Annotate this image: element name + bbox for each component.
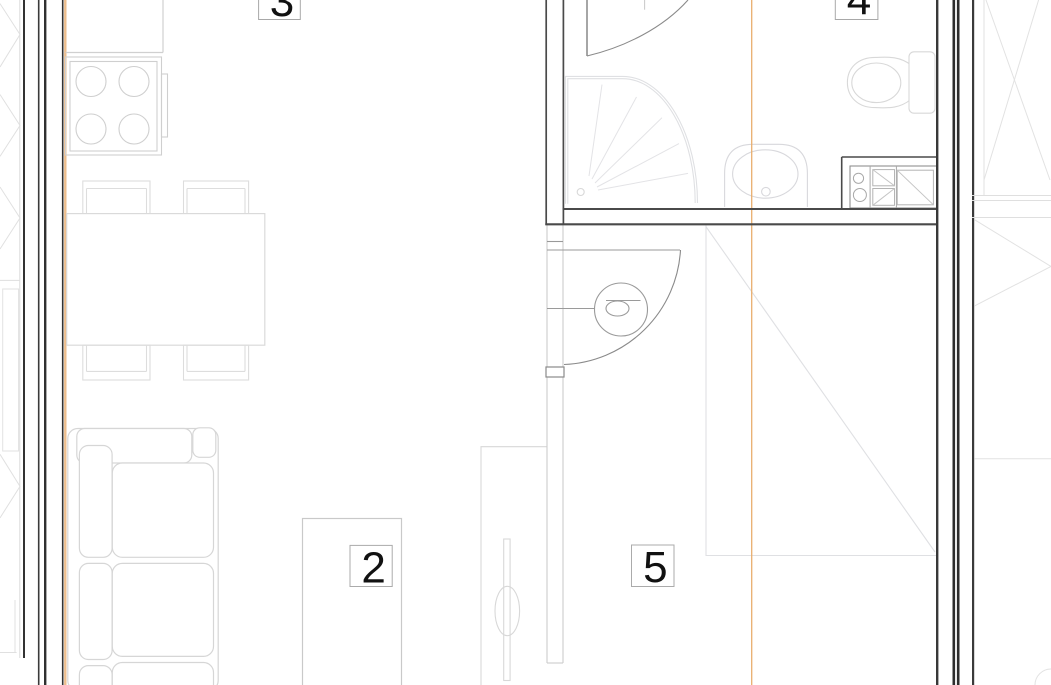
svg-text:5: 5 — [643, 543, 667, 592]
svg-text:3: 3 — [270, 0, 294, 26]
svg-text:4: 4 — [847, 0, 871, 25]
svg-text:2: 2 — [361, 543, 385, 592]
